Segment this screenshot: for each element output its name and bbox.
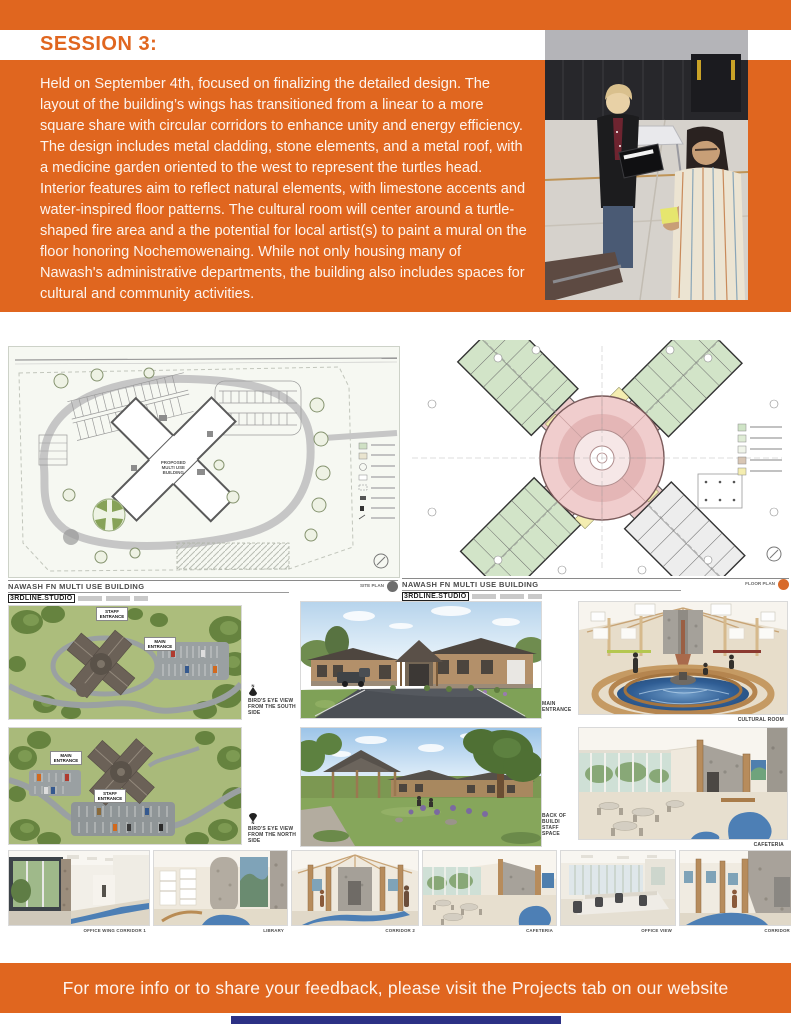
- floor-plan-project-title: NAWASH FN MULTI USE BUILDING: [402, 580, 681, 591]
- cultural-room-caption: CULTURAL ROOM: [578, 715, 786, 723]
- floor-plan-sheet-label: FLOOR PLAN: [745, 581, 775, 586]
- office-view-image: [560, 850, 676, 926]
- render-back-of-building: BACK OF BUILDI STAFF SPACE: [300, 727, 578, 849]
- session-photo: [545, 30, 748, 300]
- render-main-entrance: MAIN ENTRANCE: [300, 601, 578, 721]
- thumbnail-row: OFFICE WING CORRIDOR 1: [8, 850, 791, 934]
- corridor-2-image: [291, 850, 419, 926]
- studio-logo: 3RDLINE.STUDIO: [402, 592, 469, 601]
- thumb-caption: OFFICE VIEW: [560, 926, 676, 934]
- thumb-office-wing-corridor: OFFICE WING CORRIDOR 1: [8, 850, 150, 934]
- session-photo-image: [545, 30, 748, 300]
- site-plan-project-title: NAWASH FN MULTI USE BUILDING: [8, 582, 289, 593]
- footer-band: For more info or to share your feedback,…: [0, 963, 791, 1013]
- thumb-office-view: OFFICE VIEW: [560, 850, 676, 934]
- thumb-caption: LIBRARY: [153, 926, 288, 934]
- corridor-3-image: [679, 850, 791, 926]
- thumb-corridor-2: CORRIDOR 2: [291, 850, 419, 934]
- floor-plan-sheet-badge: [778, 579, 789, 590]
- thumb-corridor-3: CORRIDOR 3: [679, 850, 791, 934]
- aerial-south-staff-entrance-label: STAFF ENTRANCE: [96, 607, 128, 621]
- thumb-caption: CORRIDOR 3: [679, 926, 791, 934]
- newsletter-page: SESSION 3: Held on September 4th, focuse…: [0, 0, 791, 1024]
- studio-logo: 3RDLINE.STUDIO: [8, 594, 75, 603]
- render-cafeteria: CAFETERIA: [578, 727, 786, 848]
- bottom-navy-bar: [231, 1016, 561, 1024]
- cafeteria-small-image: [422, 850, 557, 926]
- studio-address-lines: [472, 594, 542, 599]
- aerial-south-caption-block: N BIRD'S EYE VIEW FROM THE SOUTH SIDE: [248, 683, 300, 716]
- aerial-north-caption: BIRD'S EYE VIEW FROM THE NORTH SIDE: [248, 826, 300, 844]
- page-title: SESSION 3:: [40, 33, 157, 56]
- aerial-north-main-entrance-label: MAIN ENTRANCE: [50, 751, 82, 765]
- aerial-north-staff-entrance-label: STAFF ENTRANCE: [94, 789, 126, 803]
- render-aerial-north: MAIN ENTRANCE STAFF ENTRANCE N BIRD'S EY…: [8, 727, 298, 847]
- floor-plan-sheet: NAWASH FN MULTI USE BUILDING 3RDLINE.STU…: [402, 340, 789, 601]
- floor-plan-titleblock: NAWASH FN MULTI USE BUILDING 3RDLINE.STU…: [402, 578, 789, 601]
- studio-address-lines: [78, 596, 148, 601]
- site-plan-sheet-badge: [387, 581, 398, 592]
- aerial-south-caption: BIRD'S EYE VIEW FROM THE SOUTH SIDE: [248, 698, 300, 716]
- thumb-caption: OFFICE WING CORRIDOR 1: [8, 926, 150, 934]
- site-plan-sheet: PROPOSED MULTI USE BUILDING NAWASH FN MU…: [8, 346, 398, 603]
- aerial-south-main-entrance-label: MAIN ENTRANCE: [144, 637, 176, 651]
- main-entrance-caption: MAIN ENTRANCE: [542, 701, 578, 713]
- site-plan-sheet-label: SITE PLAN: [360, 583, 384, 588]
- floor-plan-drawing: [402, 340, 789, 576]
- cafeteria-image: [578, 727, 788, 840]
- thumb-caption: CAFETERIA: [422, 926, 557, 934]
- svg-text:N: N: [252, 820, 255, 824]
- aerial-north-caption-block: N BIRD'S EYE VIEW FROM THE NORTH SIDE: [248, 811, 300, 844]
- back-of-building-image: [300, 727, 542, 847]
- footer-message: For more info or to share your feedback,…: [63, 978, 729, 999]
- cafeteria-caption: CAFETERIA: [578, 840, 786, 848]
- compass-icon: N: [248, 683, 258, 696]
- site-plan-drawing: [8, 346, 400, 578]
- thumb-library: LIBRARY: [153, 850, 288, 934]
- render-aerial-south: STAFF ENTRANCE MAIN ENTRANCE N BIRD'S EY…: [8, 605, 298, 723]
- office-wing-corridor-image: [8, 850, 150, 926]
- top-orange-bar: [0, 0, 791, 30]
- site-plan-titleblock: NAWASH FN MULTI USE BUILDING 3RDLINE.STU…: [8, 580, 398, 603]
- main-entrance-image: [300, 601, 542, 719]
- aerial-north-image: [8, 727, 242, 845]
- thumb-cafeteria-small: CAFETERIA: [422, 850, 557, 934]
- thumb-caption: CORRIDOR 2: [291, 926, 419, 934]
- aerial-south-image: [8, 605, 242, 720]
- back-of-building-caption: BACK OF BUILDI STAFF SPACE: [542, 813, 578, 837]
- site-plan-building-label: PROPOSED MULTI USE BUILDING: [152, 459, 194, 476]
- session-summary-text: Held on September 4th, focused on finali…: [40, 74, 527, 305]
- cultural-room-image: [578, 601, 788, 715]
- compass-icon: N: [248, 811, 258, 824]
- library-image: [153, 850, 288, 926]
- render-cultural-room: CULTURAL ROOM: [578, 601, 786, 723]
